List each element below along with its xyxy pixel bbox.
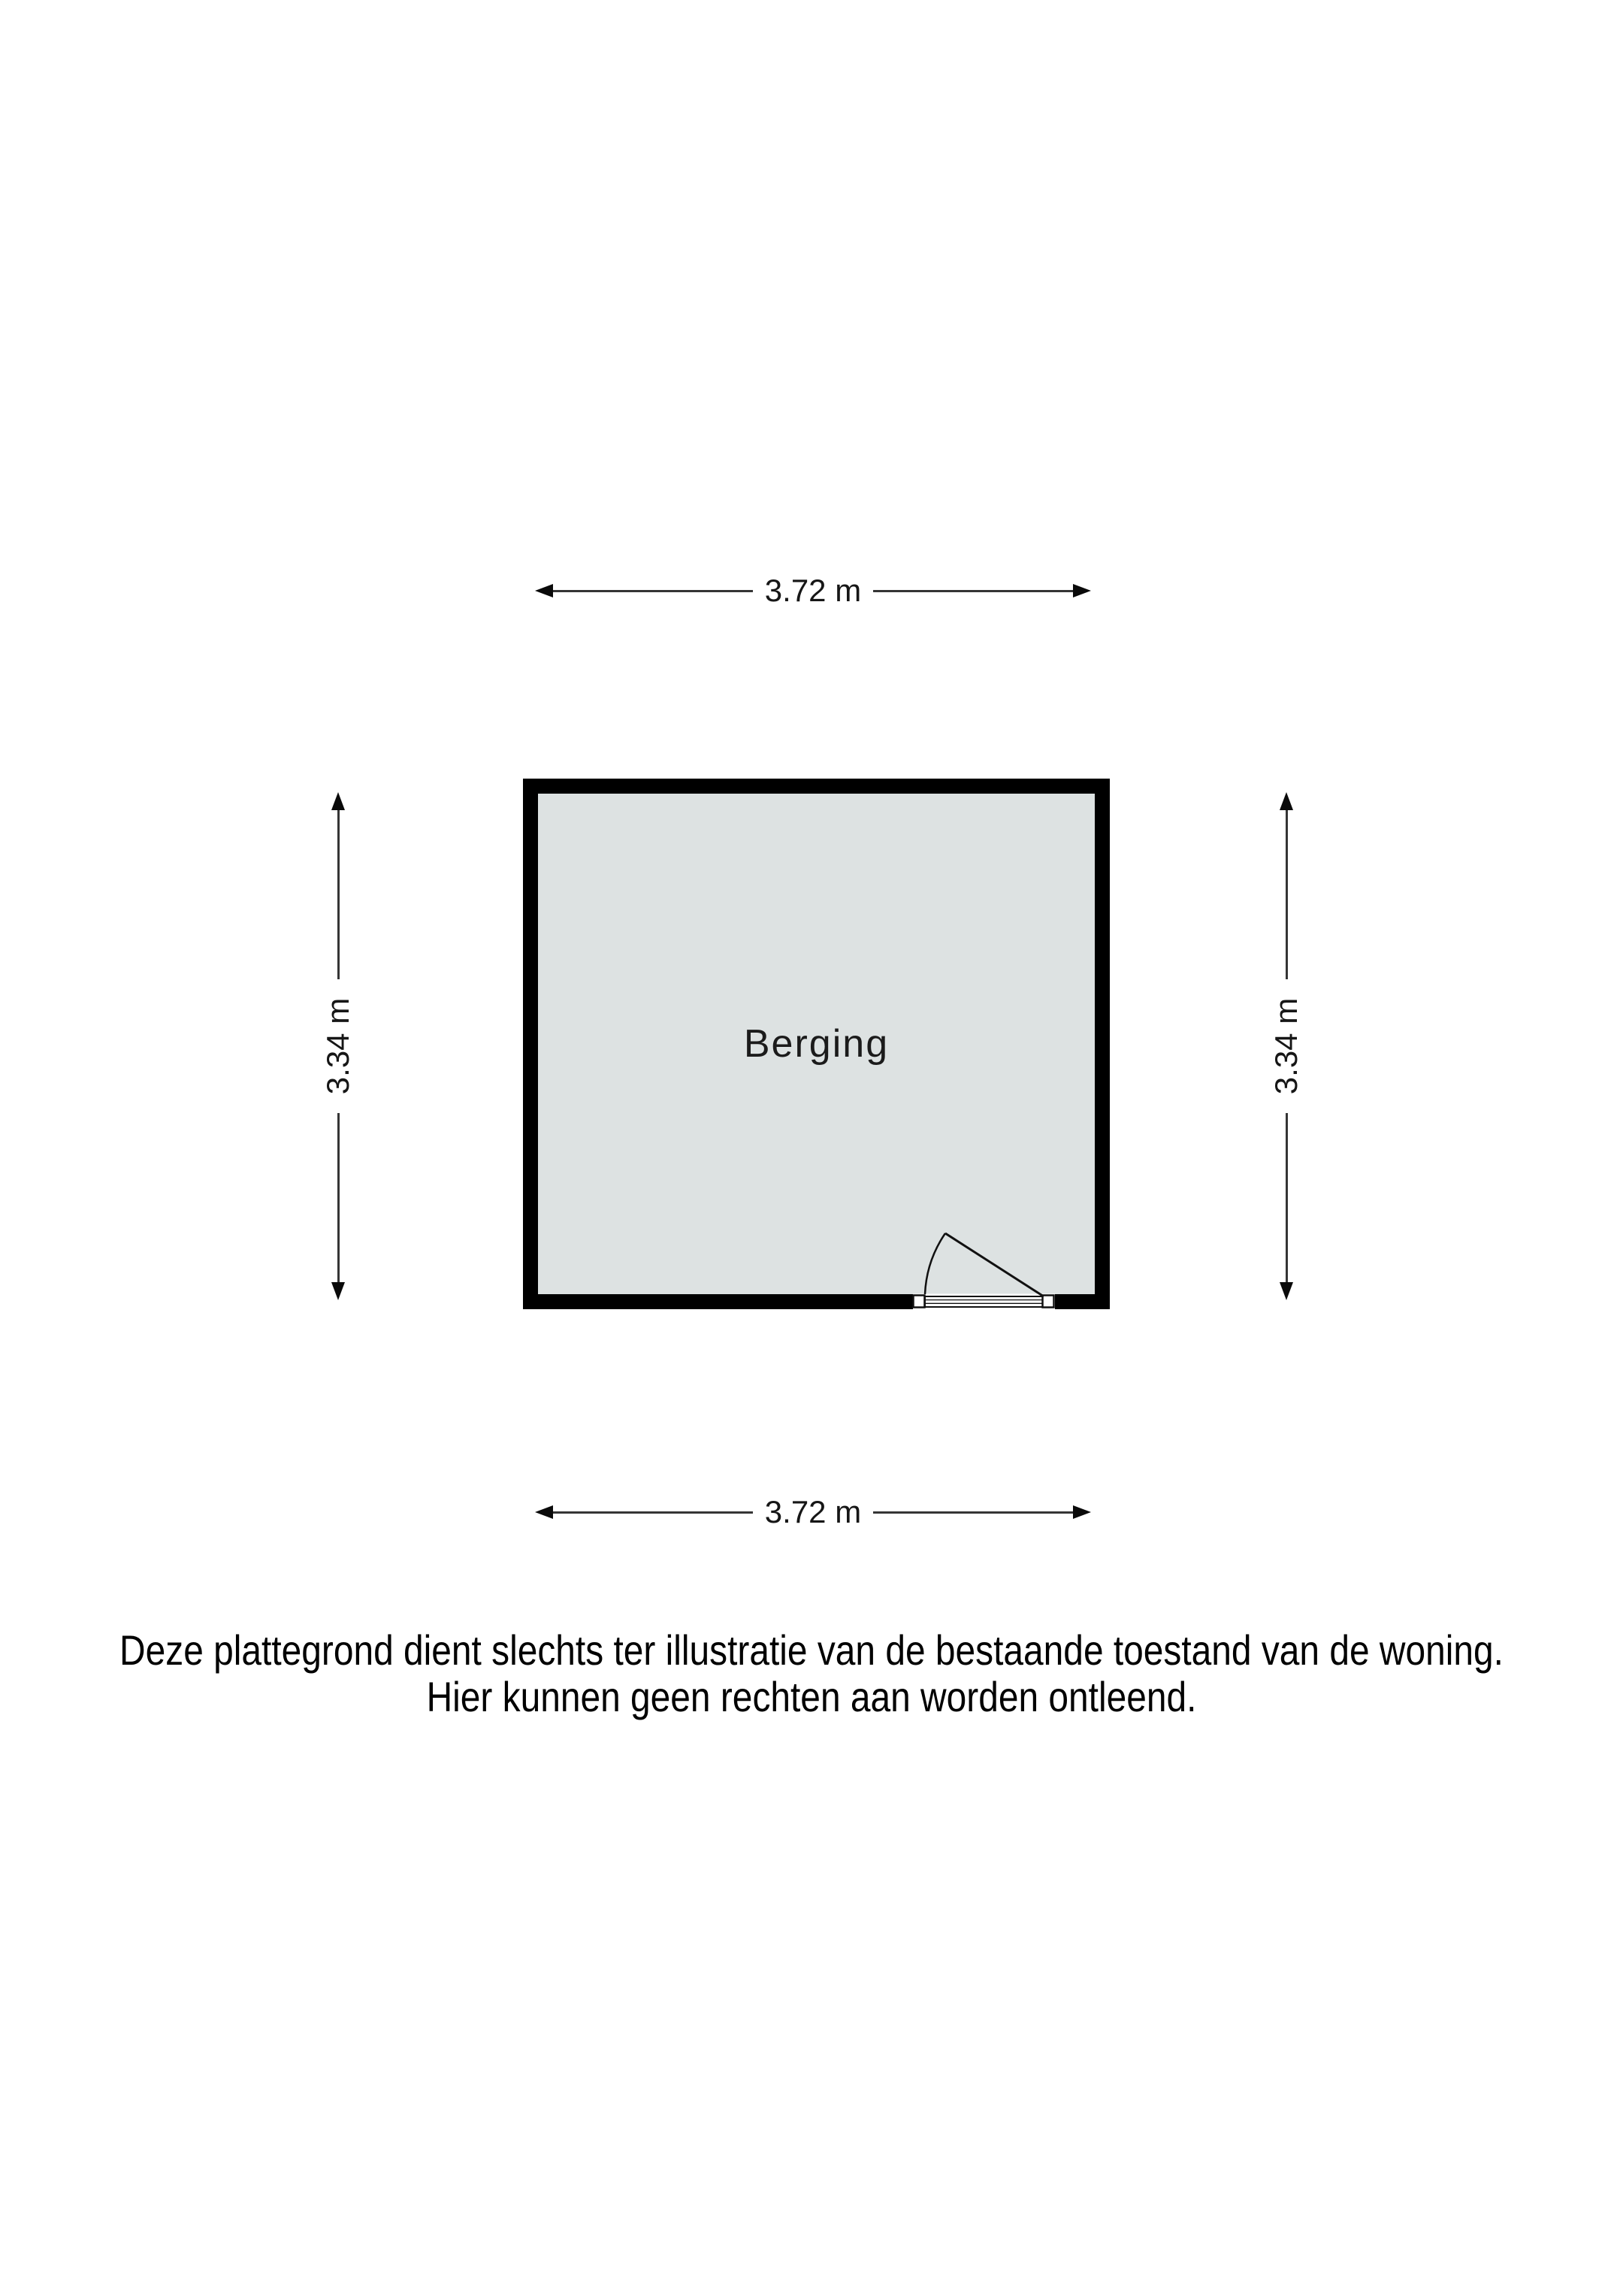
dimension-label-bottom: 3.72 m	[753, 1494, 873, 1530]
disclaimer-text: Deze plattegrond dient slechts ter illus…	[118, 1627, 1506, 1720]
dimension-line	[553, 1511, 753, 1514]
dimension-arrow-bottom: 3.72 m	[535, 1494, 1091, 1530]
dimension-line	[337, 810, 340, 979]
arrowhead-up-icon	[331, 792, 345, 810]
room-berging: Berging	[523, 779, 1110, 1309]
dimension-label-box: 3.34 m	[316, 979, 361, 1113]
arrowhead-down-icon	[1280, 1282, 1293, 1300]
disclaimer-line-1: Deze plattegrond dient slechts ter illus…	[118, 1627, 1506, 1674]
dimension-label-right: 3.34 m	[1268, 998, 1304, 1094]
dimension-line	[873, 1511, 1073, 1514]
room-label: Berging	[744, 1021, 889, 1066]
arrowhead-left-icon	[535, 1505, 553, 1519]
arrowhead-right-icon	[1073, 1505, 1091, 1519]
disclaimer-line-2: Hier kunnen geen rechten aan worden ontl…	[118, 1674, 1506, 1720]
dimension-line	[1286, 810, 1288, 979]
arrowhead-down-icon	[331, 1282, 345, 1300]
dimension-arrow-right: 3.34 m	[1264, 792, 1309, 1300]
dimension-label-left: 3.34 m	[320, 998, 356, 1094]
dimension-arrow-left: 3.34 m	[316, 792, 361, 1300]
floorplan-canvas: 3.72 m 3.34 m 3.34 m Berging	[0, 0, 1623, 2296]
arrowhead-up-icon	[1280, 792, 1293, 810]
arrowhead-right-icon	[1073, 584, 1091, 597]
dimension-line	[553, 590, 753, 592]
dimension-label-top: 3.72 m	[753, 573, 873, 609]
dimension-line	[1286, 1113, 1288, 1282]
dimension-label-box: 3.34 m	[1264, 979, 1309, 1113]
dimension-arrow-top: 3.72 m	[535, 573, 1091, 609]
dimension-line	[873, 590, 1073, 592]
dimension-line	[337, 1113, 340, 1282]
arrowhead-left-icon	[535, 584, 553, 597]
